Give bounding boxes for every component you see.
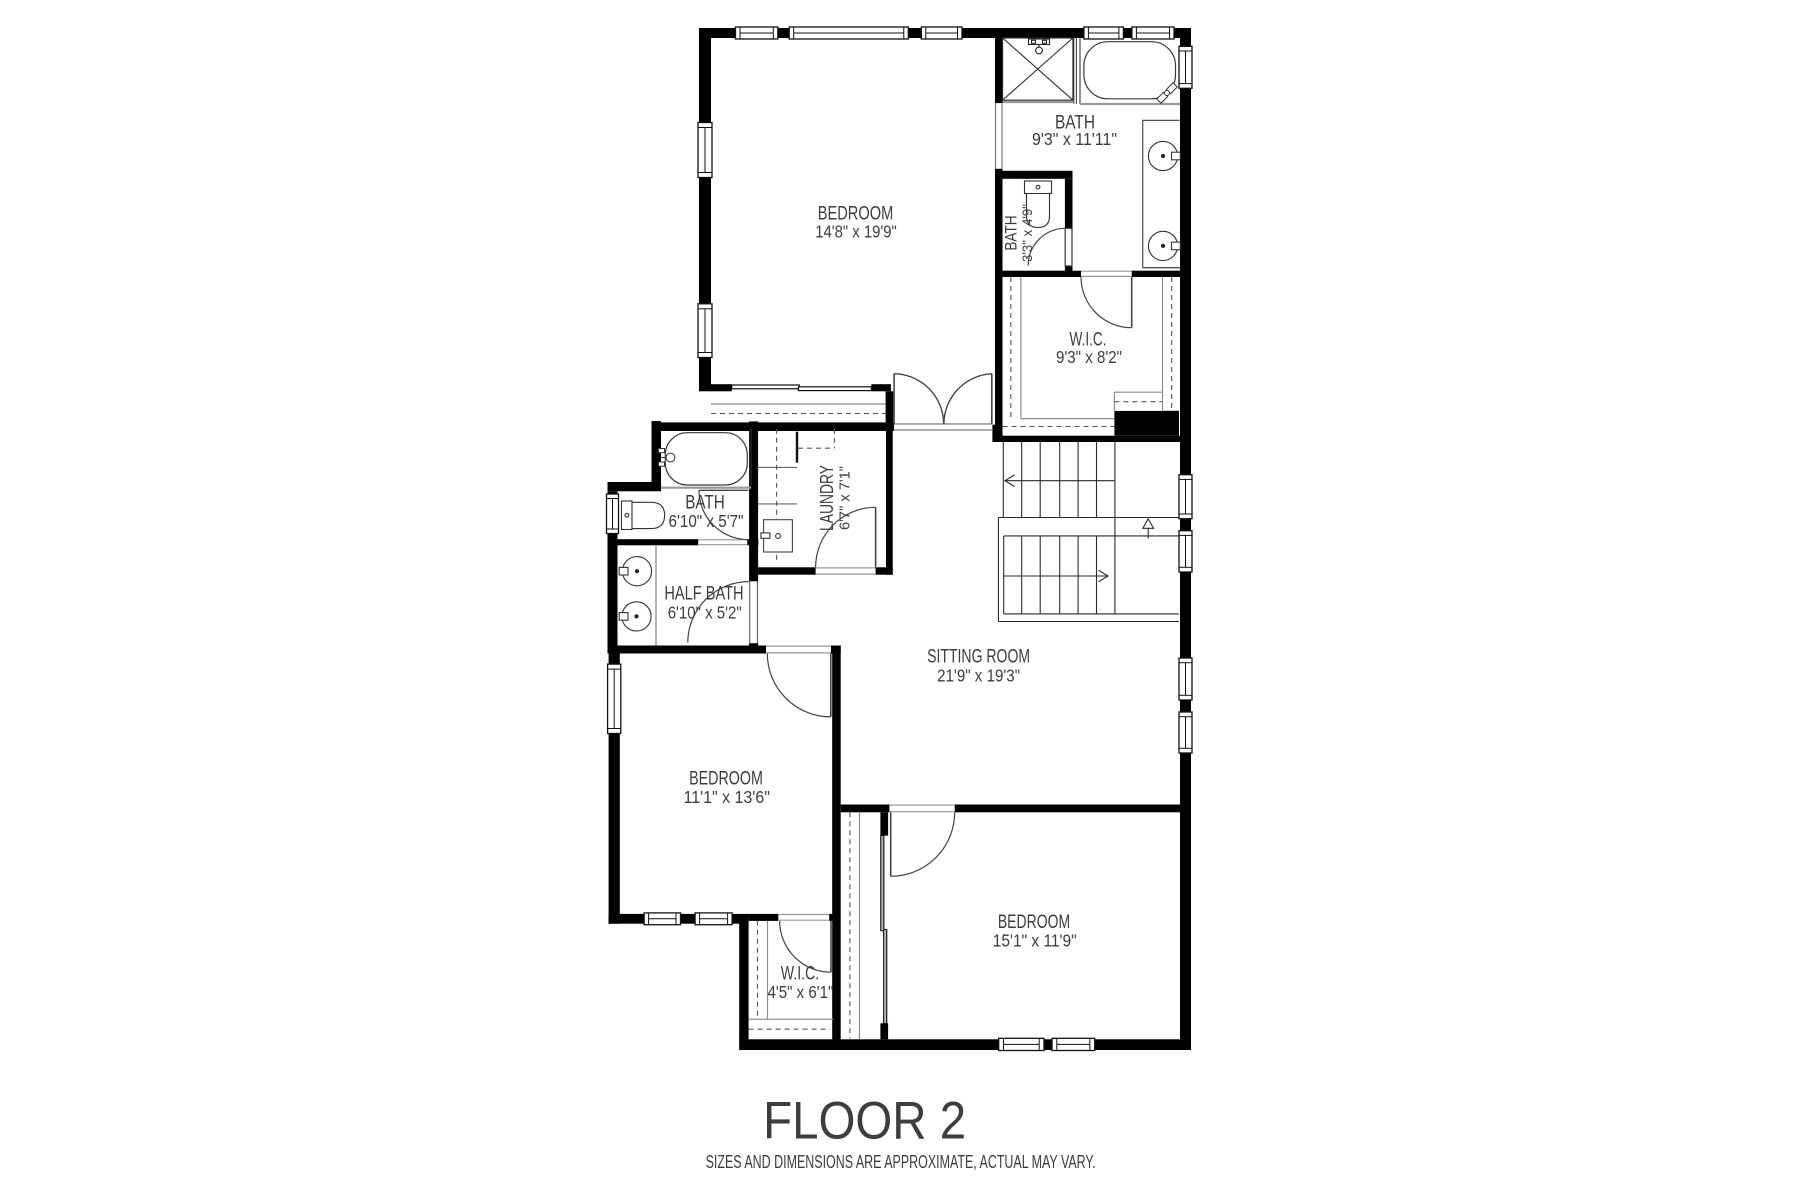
svg-text:SITTING ROOM: SITTING ROOM — [927, 647, 1030, 668]
svg-text:21'9" x 19'3": 21'9" x 19'3" — [937, 666, 1020, 686]
svg-text:14'8" x 19'9": 14'8" x 19'9" — [815, 222, 897, 242]
svg-text:4'5" x 6'1": 4'5" x 6'1" — [768, 982, 834, 1002]
svg-text:9'3" x 8'2": 9'3" x 8'2" — [1056, 347, 1122, 367]
svg-text:6'7" x 7'1": 6'7" x 7'1" — [837, 466, 854, 530]
svg-text:15'1" x 11'9": 15'1" x 11'9" — [993, 931, 1077, 951]
svg-text:11'1" x 13'6": 11'1" x 13'6" — [684, 787, 770, 807]
svg-text:FLOOR 2: FLOOR 2 — [763, 1092, 966, 1151]
svg-text:BATH: BATH — [1003, 215, 1021, 250]
svg-text:9'3" x 11'11": 9'3" x 11'11" — [1032, 129, 1117, 149]
svg-text:LAUNDRY: LAUNDRY — [817, 465, 837, 531]
svg-text:6'10" x 5'2": 6'10" x 5'2" — [668, 603, 742, 623]
svg-text:SIZES AND DIMENSIONS ARE APPRO: SIZES AND DIMENSIONS ARE APPROXIMATE, AC… — [706, 1151, 1096, 1172]
svg-text:HALF BATH: HALF BATH — [664, 584, 743, 605]
svg-text:3'3" x 4'9": 3'3" x 4'9" — [1019, 204, 1035, 262]
svg-text:6'10" x 5'7": 6'10" x 5'7" — [669, 511, 744, 531]
